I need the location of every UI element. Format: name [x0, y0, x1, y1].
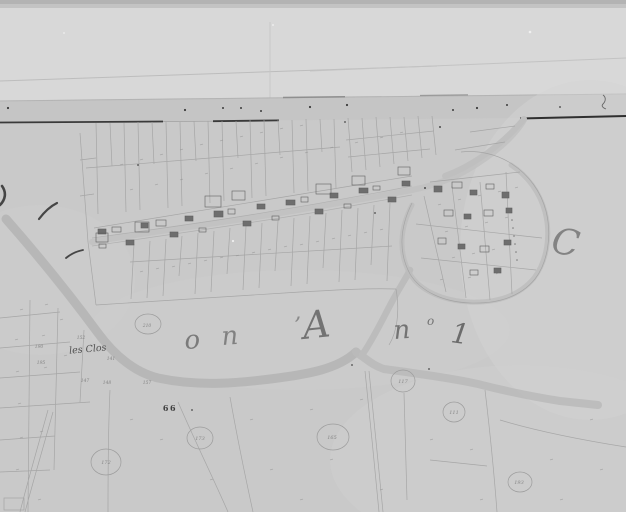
parcel-number: 148 [103, 380, 112, 386]
parcel-number: 147 [81, 378, 90, 384]
round-parcel-number: 172 [101, 460, 111, 466]
round-parcel-number: 111 [449, 410, 459, 416]
parcel-number: 195 [37, 360, 46, 366]
map-canvas: o n ’ A n o 1 C les Clos 66 210 190 195 … [0, 0, 626, 512]
bold-number-66: 66 [163, 403, 177, 413]
parcel-number: 190 [35, 344, 44, 350]
script-fragment-apostrophe: ’ [294, 314, 301, 339]
map-sheet [0, 80, 626, 512]
parcel-number: 157 [143, 380, 152, 386]
script-fragment-o: o [183, 325, 201, 356]
script-fragment-n1: n [220, 321, 239, 352]
round-parcel-number: 193 [514, 480, 524, 486]
round-parcel-number: 117 [398, 379, 408, 385]
parcel-number: 141 [107, 356, 116, 362]
round-parcel-number: 173 [195, 436, 205, 442]
script-fragment-n2: n [392, 315, 411, 346]
cadastral-map-photograph: o n ’ A n o 1 C les Clos 66 210 190 195 … [0, 0, 626, 512]
parcel-number: 210 [142, 323, 152, 329]
round-parcel-number: 165 [327, 435, 337, 441]
parcel-number: 152 [77, 335, 86, 341]
script-fragment-degree: o [427, 314, 434, 328]
photo-margin-band [0, 0, 626, 104]
